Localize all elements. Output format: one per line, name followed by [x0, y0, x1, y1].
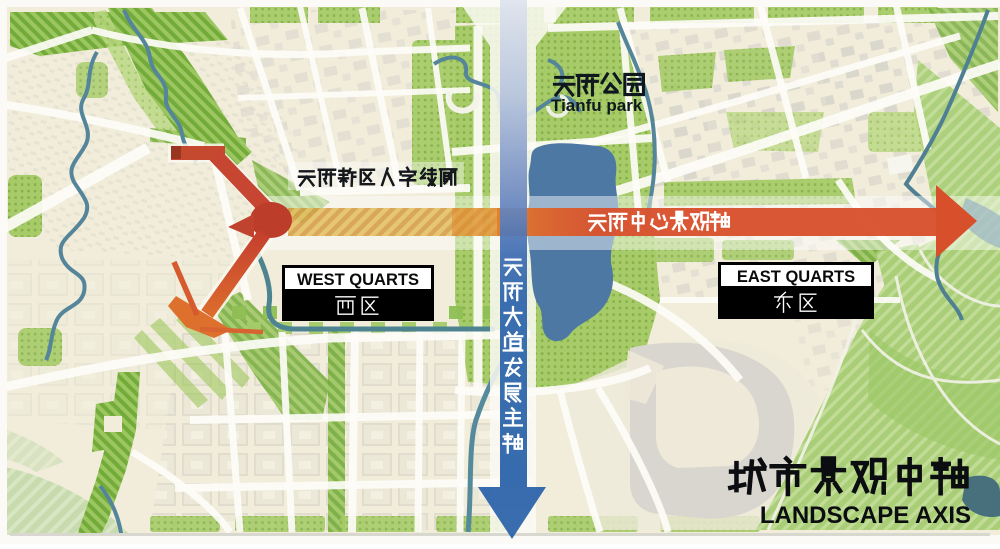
- svg-text:LANDSCAPE AXIS: LANDSCAPE AXIS: [760, 502, 971, 529]
- svg-text:EAST QUARTS: EAST QUARTS: [737, 268, 855, 286]
- svg-text:Tianfu park: Tianfu park: [551, 96, 643, 115]
- svg-text:WEST QUARTS: WEST QUARTS: [297, 271, 419, 289]
